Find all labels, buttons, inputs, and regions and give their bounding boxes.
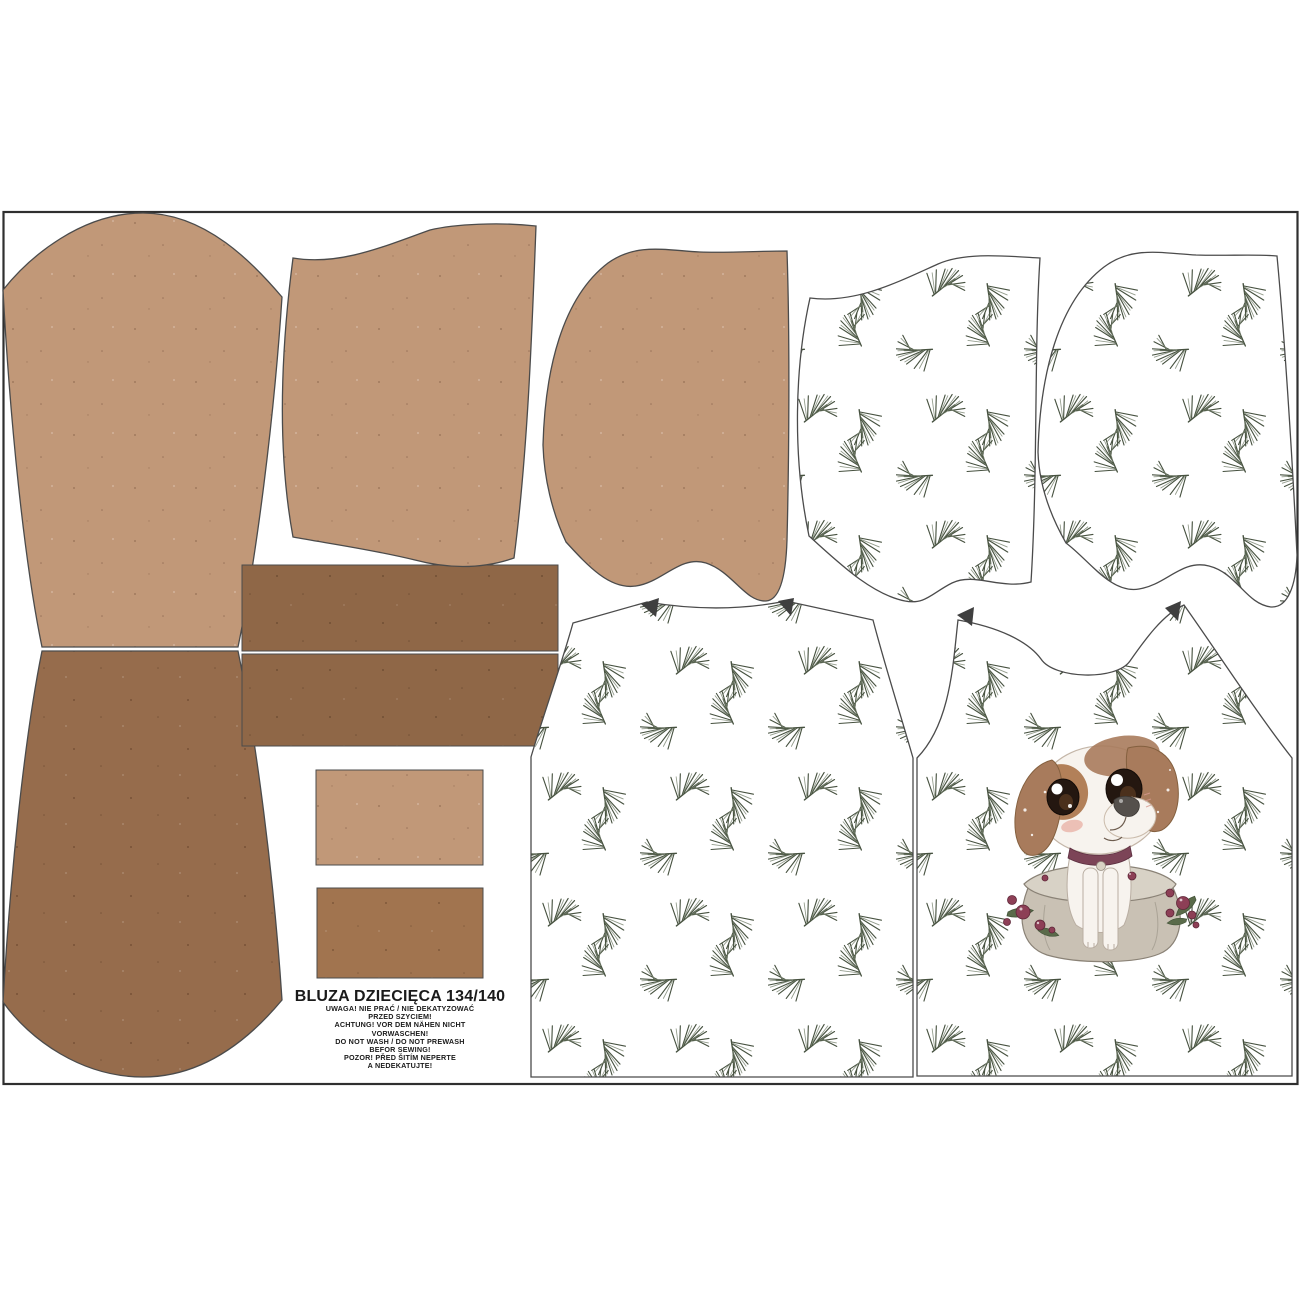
bodice-front-piece [917, 601, 1292, 1076]
panel-title: BLUZA DZIECIĘCA 134/140 [248, 988, 552, 1005]
hood-print-right-piece [1038, 252, 1297, 607]
dog-leg [1103, 868, 1118, 950]
fabric-panel-preview: BLUZA DZIECIĘCA 134/140 UWAGA! NIE PRAĆ … [0, 0, 1300, 1300]
sleeve-lower-piece [3, 651, 282, 1077]
nose-highlight [1119, 799, 1123, 803]
sleeve-upper-piece [3, 213, 282, 647]
hood-tan-left-piece [282, 224, 536, 567]
care-label-block: BLUZA DZIECIĘCA 134/140 UWAGA! NIE PRAĆ … [248, 988, 552, 1071]
bodice-back-piece [531, 598, 913, 1077]
waistband-top-piece [242, 565, 558, 651]
collar-tag [1097, 862, 1106, 871]
cuff-small-brown-piece [317, 888, 483, 978]
pattern-panel-svg [0, 0, 1300, 1300]
hood-print-left-piece [797, 256, 1040, 602]
care-line: A NEDEKATUJTE! [248, 1062, 552, 1070]
cuff-small-tan-piece [316, 770, 483, 865]
waistband-bottom-piece [242, 654, 558, 746]
eye-left [1047, 779, 1079, 815]
hood-tan-right-piece [543, 249, 789, 601]
dog-leg [1083, 868, 1098, 948]
